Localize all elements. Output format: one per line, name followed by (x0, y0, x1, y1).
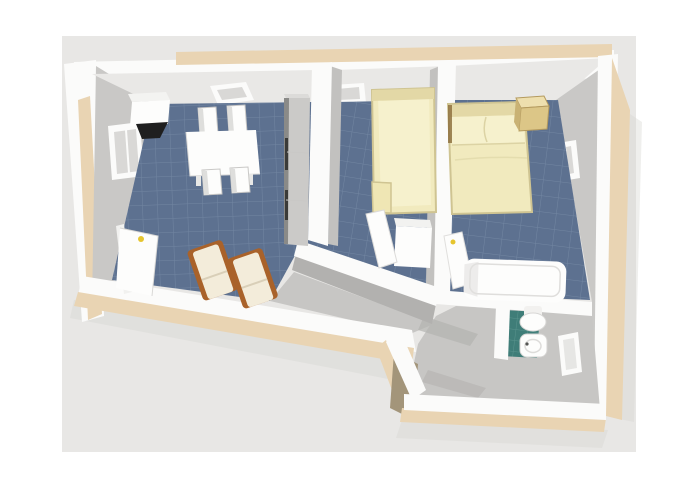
bedroom-door-handle (451, 240, 456, 245)
dining-chair-front-right (230, 167, 250, 193)
bathtub (463, 258, 566, 303)
bath-ledge-side (494, 306, 510, 360)
dining-chair-back-right (227, 105, 247, 133)
dining-chair-back-left (198, 107, 218, 135)
wardrobe (394, 218, 432, 268)
toilet (520, 334, 547, 357)
floor-plan-image (0, 0, 700, 500)
divider1-top (308, 62, 332, 246)
wall-cabinet (128, 92, 170, 126)
nightstand (514, 96, 549, 131)
floor-plan-svg (0, 0, 700, 500)
entrance-door-open (116, 224, 158, 296)
window-bathroom (558, 332, 582, 376)
tall-cabinet (284, 94, 310, 246)
dining-chair-front-left (202, 169, 222, 195)
door-handle (138, 236, 144, 242)
single-bed (372, 88, 436, 214)
